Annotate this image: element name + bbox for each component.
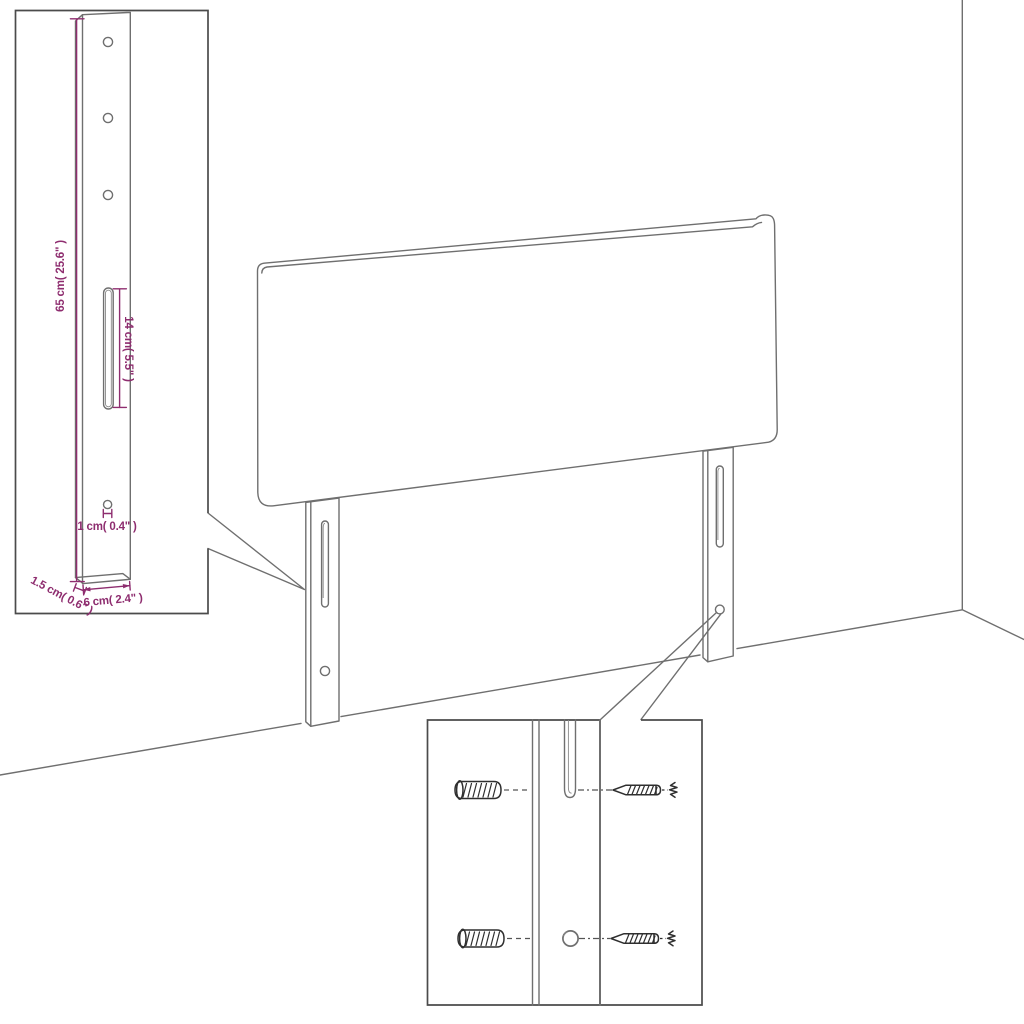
detail-inset-mounting: [428, 720, 703, 1005]
floor-line-left: [0, 610, 962, 775]
mounting-slot-shadow: [568, 720, 571, 793]
diagram-svg: 65 cm( 25.6" ) 14 cm( 5.5" ) 1 cm( 0.4" …: [0, 0, 1024, 1024]
floor-line-right: [962, 610, 1024, 640]
dimension-slot-label: 14 cm( 5.5" ): [122, 316, 134, 382]
screw-head-cross-icon: [668, 931, 676, 946]
screw-icon-upper: [613, 783, 677, 798]
headboard-panel: [258, 215, 778, 506]
left-leg: [306, 498, 339, 726]
headboard-outline: [258, 215, 778, 506]
mounting-leg-edges: [533, 720, 540, 1005]
screw-icon-lower: [611, 931, 675, 946]
right-leg: [703, 447, 733, 662]
detail-inset-bracket: 65 cm( 25.6" ) 14 cm( 5.5" ) 1 cm( 0.4" …: [16, 11, 209, 618]
screw-head-cross-icon: [670, 783, 678, 798]
assembly-diagram: 65 cm( 25.6" ) 14 cm( 5.5" ) 1 cm( 0.4" …: [0, 0, 1024, 1024]
dimension-hole-label: 1 cm( 0.4" ): [77, 521, 137, 533]
mounting-slot: [565, 720, 576, 798]
wall-anchor-icon-upper: [455, 781, 501, 799]
wall-anchor-icon-lower: [458, 929, 504, 947]
callout-wedge-left: [208, 513, 305, 590]
dimension-height-label: 65 cm( 25.6" ): [55, 240, 67, 312]
